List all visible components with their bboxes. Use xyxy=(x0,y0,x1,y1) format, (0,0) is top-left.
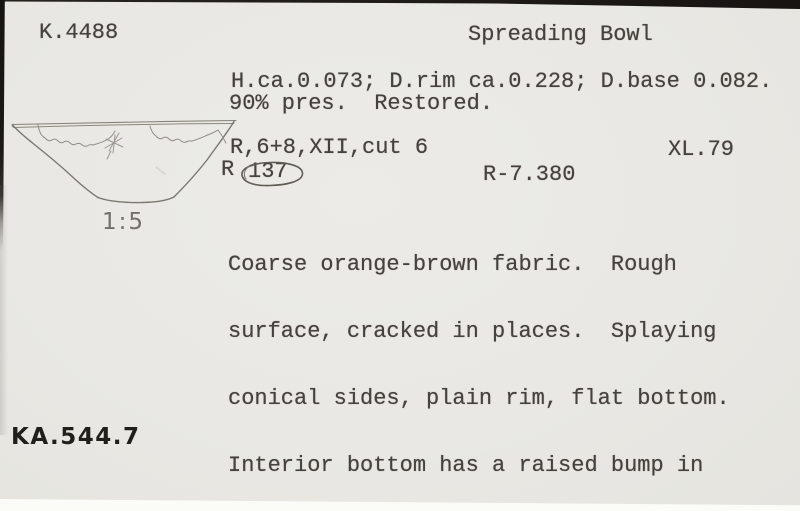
scan-edge-top xyxy=(0,0,800,10)
catalog-number: K.4488 xyxy=(39,22,118,44)
scale-label: 1:5 xyxy=(102,209,145,235)
museum-reference: R-7.380 xyxy=(483,164,575,186)
description-line: Coarse orange-brown fabric. Rough xyxy=(228,254,730,276)
description-line: surface, cracked in places. Splaying xyxy=(228,321,730,343)
scan-edge-left-shadow xyxy=(0,185,8,435)
card-surface: K.4488 Spreading Bowl H.ca.0.073; D.rim … xyxy=(0,0,800,511)
description-line: conical sides, plain rim, flat bottom. xyxy=(228,388,730,410)
findspot-line: R,6+8,XII,cut 6 xyxy=(230,137,428,159)
crack-mark-icon xyxy=(105,133,123,159)
description-text: Coarse orange-brown fabric. Rough surfac… xyxy=(228,209,730,511)
bowl-profile-sketch xyxy=(8,112,244,212)
inventory-number: KA.544.7 xyxy=(11,424,141,450)
pencil-oval xyxy=(236,159,306,189)
vessel-type-title: Spreading Bowl xyxy=(468,24,653,46)
preservation-line: 90% pres. Restored. xyxy=(229,93,493,115)
description-line: Interior bottom has a raised bump in xyxy=(228,455,730,477)
plate-reference: XL.79 xyxy=(668,139,734,161)
